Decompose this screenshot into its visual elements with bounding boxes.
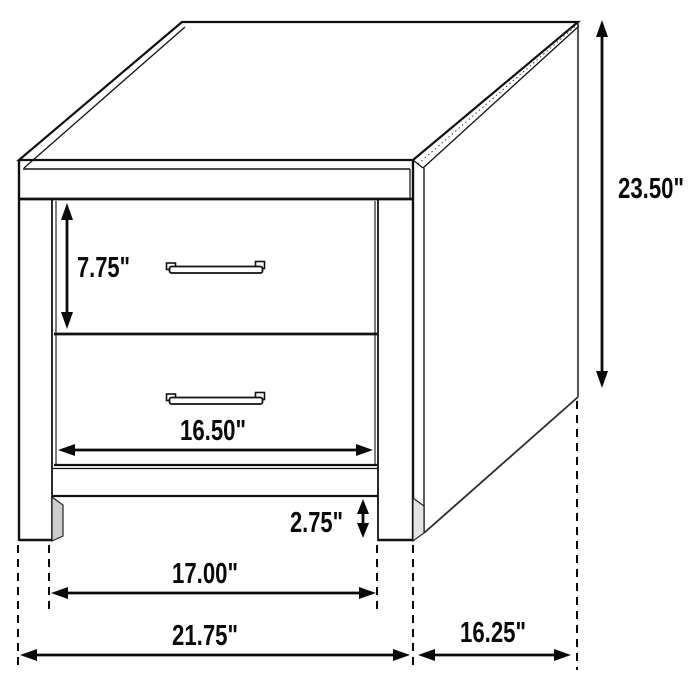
dimension-diagram: 23.50" 7.75" 16.50" 2.75" 17 xyxy=(0,0,700,700)
side-panel-bottom-edge xyxy=(424,397,578,533)
top-right-edge-texture-line xyxy=(418,24,578,164)
arrowhead-right xyxy=(359,587,376,599)
top-left-bevel-line xyxy=(24,27,185,168)
arrowhead-right xyxy=(554,649,571,661)
dim-label-overall-height: 23.50" xyxy=(618,173,684,205)
top-drawer-handle xyxy=(167,262,265,274)
dim-label-between-legs: 17.00" xyxy=(172,558,238,590)
arrowhead-up xyxy=(61,203,73,220)
arrowhead-down xyxy=(357,523,369,538)
dim-label-overall-width: 21.75" xyxy=(172,620,238,652)
top-right-bevel-line xyxy=(423,26,579,168)
handle-bar xyxy=(170,398,263,405)
dim-overall-height: 23.50" xyxy=(596,20,684,388)
arrowhead-left xyxy=(51,587,68,599)
arrowhead-up xyxy=(596,20,608,37)
arrowhead-left xyxy=(58,444,75,456)
arrowhead-up xyxy=(357,499,369,514)
bottom-drawer-handle xyxy=(167,393,265,405)
dim-label-drawer-width: 16.50" xyxy=(180,415,246,447)
dim-depth: 16.25" xyxy=(418,617,571,661)
right-leg-side-face xyxy=(413,498,424,541)
top-surface xyxy=(19,22,578,160)
dim-overall-width: 21.75" xyxy=(20,620,410,661)
arrowhead-down xyxy=(61,312,73,329)
handle-bar xyxy=(170,267,263,274)
top-right-corner-bevel xyxy=(413,160,423,168)
dim-drawer-face-height: 7.75" xyxy=(61,203,130,329)
dim-label-drawer-face-height: 7.75" xyxy=(77,252,130,284)
arrowhead-left xyxy=(418,649,435,661)
dim-floor-clearance: 2.75" xyxy=(290,499,369,539)
nightstand-dimension-drawing: 23.50" 7.75" 16.50" 2.75" 17 xyxy=(0,0,700,700)
arrowhead-down xyxy=(596,371,608,388)
dim-label-depth: 16.25" xyxy=(460,617,526,649)
dimension-annotations: 23.50" 7.75" 16.50" 2.75" 17 xyxy=(20,20,684,661)
dim-drawer-width: 16.50" xyxy=(58,415,373,456)
left-leg-side-face xyxy=(52,497,63,541)
arrowhead-right xyxy=(356,444,373,456)
arrowhead-right xyxy=(393,649,410,661)
arrowhead-left xyxy=(20,649,37,661)
dim-label-floor-clearance: 2.75" xyxy=(290,507,343,539)
dim-between-legs: 17.00" xyxy=(51,558,376,599)
